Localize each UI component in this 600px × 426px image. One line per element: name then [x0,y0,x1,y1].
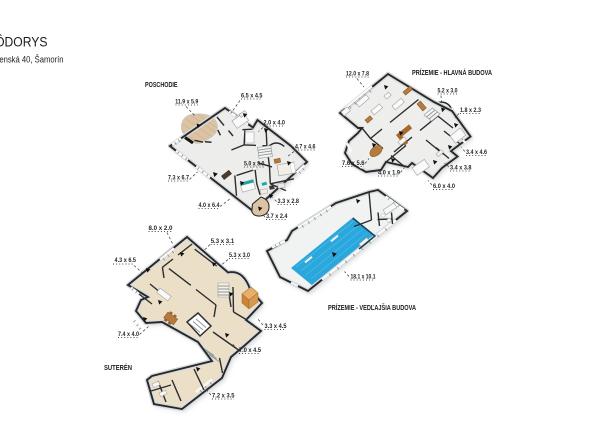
svg-text:5.0 x 3.0: 5.0 x 3.0 [244,161,265,168]
svg-text:7.2 x 3.5: 7.2 x 3.5 [212,393,235,400]
svg-text:6.0 x 4.0: 6.0 x 4.0 [433,183,455,190]
svg-text:POSCHODIE: POSCHODIE [145,82,178,89]
svg-text:12.0 x 7.8: 12.0 x 7.8 [346,71,369,78]
svg-text:PRÍZEMIE - VEDĽAJŠIA BUDOVA: PRÍZEMIE - VEDĽAJŠIA BUDOVA [328,303,416,312]
svg-text:11.9 x 5.9: 11.9 x 5.9 [175,98,198,105]
svg-text:7.3 x 6.7: 7.3 x 6.7 [168,175,189,182]
svg-text:4.0 x 6.4: 4.0 x 6.4 [199,202,220,209]
svg-text:7.6 x 5.6: 7.6 x 5.6 [342,160,365,167]
svg-text:5.3 x 3.1: 5.3 x 3.1 [211,238,235,245]
svg-text:PRÍZEMIE - HLAVNÁ BUDOVA: PRÍZEMIE - HLAVNÁ BUDOVA [412,68,492,77]
svg-text:3.4 x 3.8: 3.4 x 3.8 [450,165,472,172]
svg-text:4.0 x 1.9: 4.0 x 1.9 [378,170,400,177]
svg-text:3.3 x 2.8: 3.3 x 2.8 [278,198,300,205]
svg-text:SUTERÉN: SUTERÉN [104,363,132,372]
svg-text:6.5 x 4.5: 6.5 x 4.5 [241,93,263,100]
svg-text:18.1 x 10.1: 18.1 x 10.1 [351,274,376,281]
svg-text:7.4 x 4.0: 7.4 x 4.0 [118,331,139,338]
svg-text:1.8 x 2.3: 1.8 x 2.3 [460,107,481,114]
svg-text:3.3 x 4.5: 3.3 x 4.5 [265,323,287,330]
svg-text:5.3 x 3.0: 5.3 x 3.0 [229,252,250,259]
svg-text:4.7 x 4.6: 4.7 x 4.6 [295,144,316,151]
svg-text:3.4 x 4.6: 3.4 x 4.6 [466,149,487,156]
svg-text:PÔDORYS: PÔDORYS [0,35,48,50]
svg-text:8.0 x 2.0: 8.0 x 2.0 [149,225,173,232]
svg-text:3.7 x 2.4: 3.7 x 2.4 [266,213,288,220]
svg-text:5.2 x 3.0: 5.2 x 3.0 [438,88,458,95]
svg-text:venská 40, Šamorín: venská 40, Šamorín [0,55,64,66]
svg-text:4.3 x 6.5: 4.3 x 6.5 [115,257,137,264]
svg-text:2.0 x 4.0: 2.0 x 4.0 [264,120,286,127]
svg-text:7.0 x 4.5: 7.0 x 4.5 [239,347,261,354]
